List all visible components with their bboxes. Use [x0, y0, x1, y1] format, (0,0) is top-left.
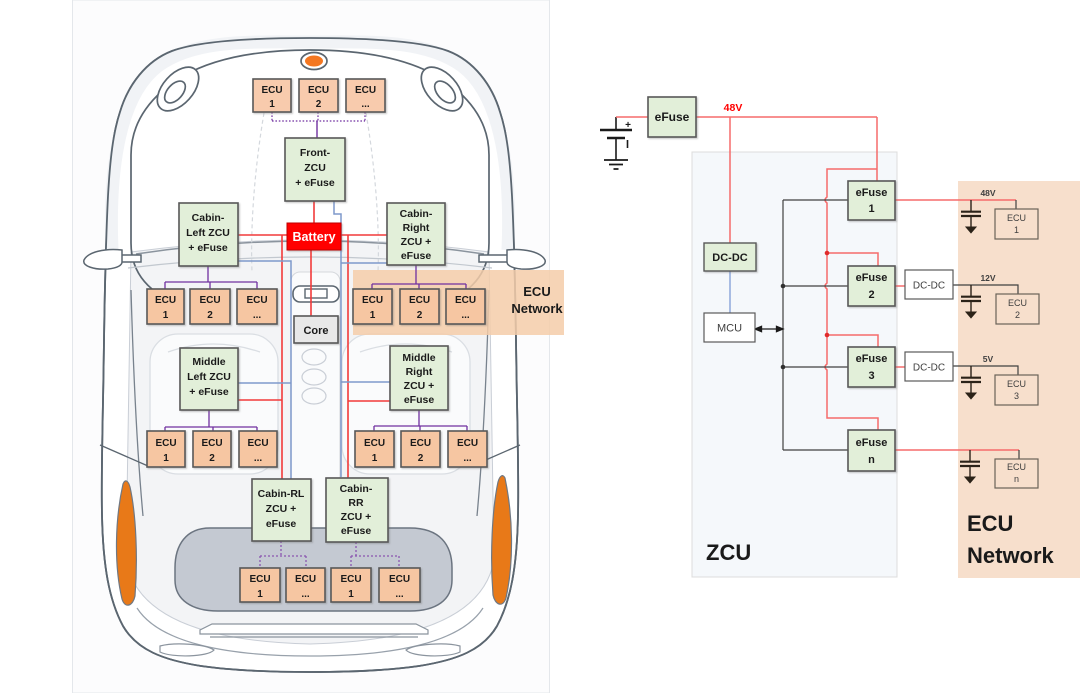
svg-text:1: 1 [269, 99, 275, 110]
svg-text:eFuse: eFuse [266, 518, 297, 530]
svg-text:ECU: ECU [261, 85, 282, 96]
svg-text:eFuse: eFuse [341, 525, 372, 537]
svg-text:Cabin-: Cabin- [400, 208, 433, 220]
svg-text:2: 2 [417, 310, 423, 321]
svg-text:ECU: ECU [199, 295, 220, 306]
svg-text:2: 2 [868, 289, 874, 301]
svg-text:Right: Right [406, 366, 433, 378]
svg-text:2: 2 [209, 453, 215, 464]
svg-text:1: 1 [348, 589, 354, 600]
svg-text:...: ... [463, 453, 472, 464]
svg-text:ECU: ECU [355, 85, 376, 96]
svg-text:Right: Right [403, 222, 430, 234]
svg-text:ECU: ECU [249, 574, 270, 585]
svg-text:ECU: ECU [1007, 462, 1026, 472]
svg-text:ECU: ECU [389, 574, 410, 585]
svg-text:Core: Core [303, 325, 328, 337]
svg-text:48V: 48V [724, 102, 743, 114]
svg-text:+: + [625, 120, 631, 131]
svg-text:1: 1 [372, 453, 378, 464]
svg-text:ECU: ECU [308, 85, 329, 96]
svg-text:2: 2 [1015, 310, 1020, 320]
svg-text:eFuse: eFuse [655, 110, 690, 124]
svg-text:1: 1 [163, 453, 169, 464]
svg-text:3: 3 [1014, 391, 1019, 401]
svg-text:Middle: Middle [402, 352, 435, 364]
svg-text:ECU: ECU [409, 295, 430, 306]
svg-text:eFuse: eFuse [401, 250, 432, 262]
svg-text:...: ... [254, 453, 263, 464]
svg-text:ECU: ECU [295, 574, 316, 585]
svg-text:eFuse: eFuse [856, 187, 888, 199]
svg-text:ZCU +: ZCU + [404, 380, 435, 392]
svg-text:+ eFuse: + eFuse [189, 386, 229, 398]
svg-text:+ eFuse: + eFuse [295, 177, 335, 189]
svg-text:Cabin-RL: Cabin-RL [258, 488, 305, 500]
svg-text:5V: 5V [983, 354, 994, 364]
svg-text:ECU: ECU [1008, 298, 1027, 308]
svg-text:n: n [868, 454, 875, 466]
svg-text:3: 3 [868, 370, 874, 382]
svg-text:ECU: ECU [455, 295, 476, 306]
svg-text:eFuse: eFuse [856, 353, 888, 365]
svg-text:ECU: ECU [155, 295, 176, 306]
svg-text:eFuse: eFuse [856, 437, 888, 449]
svg-text:ECU: ECU [967, 511, 1013, 536]
svg-text:1: 1 [257, 589, 263, 600]
svg-text:ECU: ECU [1007, 379, 1026, 389]
svg-text:RR: RR [348, 497, 364, 509]
svg-text:n: n [1014, 474, 1019, 484]
svg-text:Cabin-: Cabin- [340, 483, 373, 495]
svg-text:2: 2 [316, 99, 322, 110]
svg-text:ECU: ECU [340, 574, 361, 585]
svg-text:+ eFuse: + eFuse [188, 242, 228, 254]
svg-text:ECU: ECU [246, 295, 267, 306]
svg-text:ECU: ECU [457, 438, 478, 449]
svg-text:ZCU +: ZCU + [401, 236, 432, 248]
svg-text:Network: Network [967, 543, 1055, 568]
svg-text:2: 2 [207, 310, 213, 321]
svg-text:ECU: ECU [364, 438, 385, 449]
svg-text:Left ZCU: Left ZCU [187, 371, 231, 383]
svg-text:1: 1 [163, 310, 169, 321]
svg-text:12V: 12V [980, 273, 995, 283]
svg-text:Middle: Middle [192, 356, 225, 368]
svg-text:...: ... [395, 589, 404, 600]
svg-text:ZCU: ZCU [706, 540, 751, 565]
svg-text:1: 1 [1014, 225, 1019, 235]
svg-text:eFuse: eFuse [856, 272, 888, 284]
svg-text:Front-: Front- [300, 147, 331, 159]
svg-text:ECU: ECU [155, 438, 176, 449]
svg-text:ECU: ECU [201, 438, 222, 449]
svg-text:...: ... [361, 99, 370, 110]
svg-text:eFuse: eFuse [404, 394, 435, 406]
svg-text:ZCU +: ZCU + [341, 511, 372, 523]
svg-text:DC-DC: DC-DC [712, 252, 747, 264]
svg-text:ECU: ECU [1007, 213, 1026, 223]
svg-text:48V: 48V [980, 188, 995, 198]
svg-text:...: ... [461, 310, 470, 321]
svg-text:ECU: ECU [410, 438, 431, 449]
svg-text:MCU: MCU [717, 323, 742, 335]
svg-text:Battery: Battery [292, 230, 335, 244]
svg-text:...: ... [301, 589, 310, 600]
svg-text:ECU: ECU [523, 284, 550, 299]
svg-text:ZCU +: ZCU + [266, 503, 297, 515]
svg-text:DC-DC: DC-DC [913, 281, 945, 292]
svg-text:DC-DC: DC-DC [913, 363, 945, 374]
svg-text:ECU: ECU [362, 295, 383, 306]
svg-text:ECU: ECU [247, 438, 268, 449]
svg-text:ZCU: ZCU [304, 162, 326, 174]
svg-text:Left ZCU: Left ZCU [186, 227, 230, 239]
svg-text:1: 1 [868, 203, 874, 215]
svg-text:Network: Network [511, 301, 563, 316]
svg-text:Cabin-: Cabin- [192, 212, 225, 224]
svg-text:...: ... [253, 310, 262, 321]
svg-text:1: 1 [370, 310, 376, 321]
svg-text:2: 2 [418, 453, 424, 464]
